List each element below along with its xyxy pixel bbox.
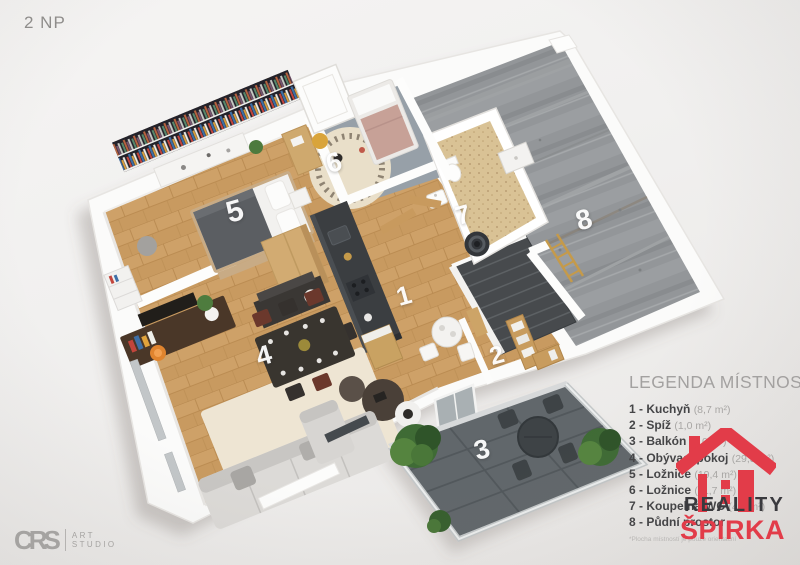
studio-logo: CRS ART STUDIO [14, 527, 117, 553]
divider [65, 529, 66, 551]
legend-item-area: (8,7 m²) [694, 404, 731, 416]
agency-logo: REALITY ŠPIRKA [640, 426, 785, 546]
floorplan-page: 2 NP 12345678 LEGENDA MÍSTNOSTÍ 1 - Kuch… [0, 0, 800, 565]
washing-machine-icon [465, 232, 490, 257]
legend-item: 1 - Kuchyň (8,7 m²) [629, 402, 797, 418]
agency-name-line2: ŠPIRKA [640, 515, 785, 546]
studio-sub1: ART [72, 531, 117, 541]
studio-monogram: CRS [14, 527, 57, 553]
plant-icon [197, 295, 213, 311]
plant-icon [249, 140, 263, 154]
legend-item-name: 1 - Kuchyň [629, 402, 694, 416]
agency-name-line1: REALITY [640, 494, 785, 517]
pouf [137, 236, 157, 256]
floor-label: 2 NP [24, 13, 66, 33]
studio-sub2: STUDIO [72, 540, 117, 550]
legend-title: LEGENDA MÍSTNOSTÍ [629, 372, 797, 393]
pouf-yellow [312, 133, 328, 149]
